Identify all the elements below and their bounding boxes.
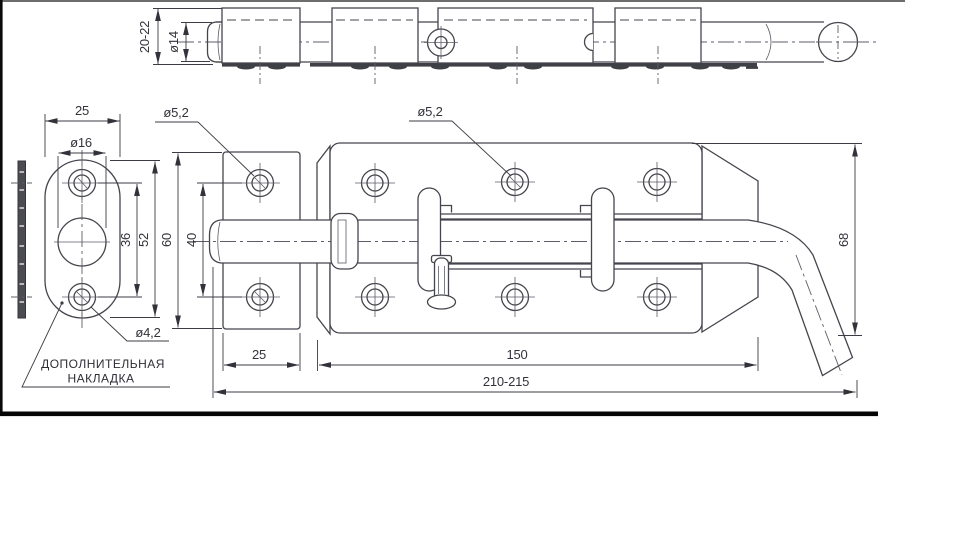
callout-plate-screw-dia-label: ø4,2	[135, 325, 160, 340]
dim-keeper-width: 25	[223, 333, 300, 371]
dim-rod-diameter-label: ø14	[166, 31, 181, 53]
top-view-brackets	[222, 8, 701, 63]
dim-plate-height-label: 52	[136, 233, 151, 247]
note-line2: НАКЛАДКА	[67, 372, 134, 386]
dim-plate-width-label: 25	[75, 103, 89, 118]
dim-keeper-width-label: 25	[252, 347, 266, 362]
guide-tab-right	[592, 188, 615, 291]
note-line1: ДОПОЛНИТЕЛЬНАЯ	[41, 357, 165, 371]
top-view: 20-22 ø14	[137, 8, 878, 84]
callout-body-screw-dia-label: ø5,2	[417, 104, 442, 119]
dim-body-length-label: 150	[506, 347, 527, 362]
dim-plate-hole-spacing-label: 36	[118, 233, 133, 247]
dim-keeper-screw-spacing-label: 40	[184, 233, 199, 247]
technical-drawing-page: 20-22 ø14	[0, 0, 960, 540]
dim-top-height-label: 20-22	[137, 21, 152, 53]
front-view: ø5,2 ø5,2 60 40 25	[155, 104, 862, 398]
latch-technical-drawing: 20-22 ø14	[0, 0, 960, 540]
dim-keeper-height-label: 60	[159, 233, 174, 247]
dim-plate-center-hole-label: ø16	[70, 135, 92, 150]
plate-edge-strip	[11, 161, 32, 318]
rod-guide-loop	[331, 214, 358, 270]
dim-body-length: 150	[318, 337, 759, 371]
plate-side-view: 25 ø16 36 52 ø4,2 ДОПОЛНИТЕЛЬНАЯ	[11, 103, 170, 387]
top-view-base-strip	[222, 63, 758, 70]
dim-overall-length-label: 210-215	[483, 374, 529, 389]
callout-keeper-screw-dia-label: ø5,2	[163, 105, 188, 120]
frame-bottom-border	[0, 412, 878, 417]
frame-left-border	[0, 0, 3, 414]
dim-body-height-label: 68	[836, 233, 851, 247]
